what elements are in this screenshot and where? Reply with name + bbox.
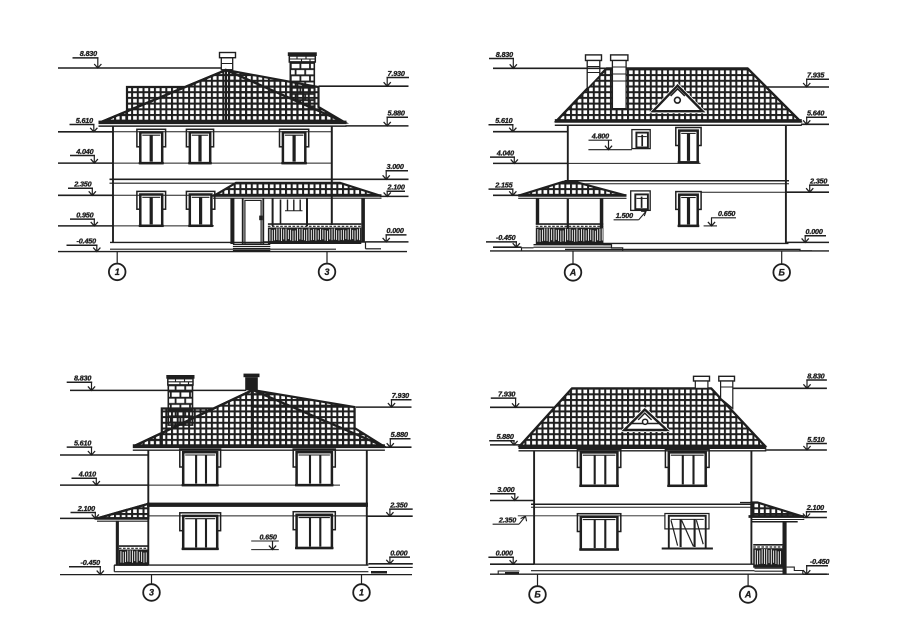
svg-text:8.830: 8.830 — [807, 371, 824, 380]
svg-text:5.880: 5.880 — [388, 109, 405, 118]
svg-text:2.100: 2.100 — [387, 183, 405, 192]
svg-text:2.350: 2.350 — [498, 516, 516, 525]
svg-text:3.000: 3.000 — [497, 485, 514, 494]
svg-text:-0.450: -0.450 — [81, 558, 101, 567]
svg-text:-0.450: -0.450 — [496, 233, 516, 242]
svg-text:4.800: 4.800 — [591, 132, 609, 141]
svg-text:4.040: 4.040 — [496, 148, 514, 157]
svg-text:5.880: 5.880 — [391, 430, 408, 439]
svg-text:2.350: 2.350 — [809, 176, 827, 185]
svg-text:0.000: 0.000 — [806, 227, 823, 236]
svg-text:3.000: 3.000 — [387, 162, 404, 171]
svg-text:1.500: 1.500 — [616, 211, 633, 220]
svg-text:0.650: 0.650 — [259, 532, 276, 541]
svg-text:5.880: 5.880 — [496, 432, 513, 441]
svg-text:-0.450: -0.450 — [810, 557, 830, 566]
svg-text:Б: Б — [779, 268, 786, 278]
svg-text:7.930: 7.930 — [498, 389, 515, 398]
svg-text:3: 3 — [324, 267, 329, 277]
svg-text:2.100: 2.100 — [77, 504, 95, 513]
svg-text:5.610: 5.610 — [495, 116, 512, 125]
svg-text:8.830: 8.830 — [74, 374, 91, 383]
svg-text:1: 1 — [359, 588, 364, 598]
svg-text:8.830: 8.830 — [80, 49, 97, 58]
svg-text:5.610: 5.610 — [76, 116, 93, 125]
svg-text:5.610: 5.610 — [74, 438, 91, 447]
svg-text:7.935: 7.935 — [807, 71, 825, 80]
svg-text:4.040: 4.040 — [75, 147, 93, 156]
svg-text:4.010: 4.010 — [78, 470, 96, 479]
svg-text:7.930: 7.930 — [392, 391, 409, 400]
svg-text:0.650: 0.650 — [718, 209, 735, 218]
svg-text:2.350: 2.350 — [389, 500, 407, 509]
svg-text:0.950: 0.950 — [76, 210, 93, 219]
svg-text:1: 1 — [115, 267, 120, 277]
svg-text:0.000: 0.000 — [496, 549, 513, 558]
svg-text:7.930: 7.930 — [388, 69, 405, 78]
svg-text:0.000: 0.000 — [387, 226, 404, 235]
svg-text:3: 3 — [149, 588, 154, 598]
svg-text:Б: Б — [534, 590, 541, 600]
svg-text:5.640: 5.640 — [807, 109, 824, 118]
svg-text:2.155: 2.155 — [494, 180, 513, 189]
svg-text:-0.450: -0.450 — [77, 237, 97, 246]
svg-text:2.350: 2.350 — [73, 180, 91, 189]
svg-text:5.510: 5.510 — [807, 435, 824, 444]
svg-text:А: А — [569, 268, 577, 278]
svg-text:2.100: 2.100 — [806, 503, 824, 512]
svg-text:0.000: 0.000 — [390, 548, 407, 557]
svg-text:8.830: 8.830 — [496, 50, 513, 59]
svg-text:А: А — [744, 590, 752, 600]
